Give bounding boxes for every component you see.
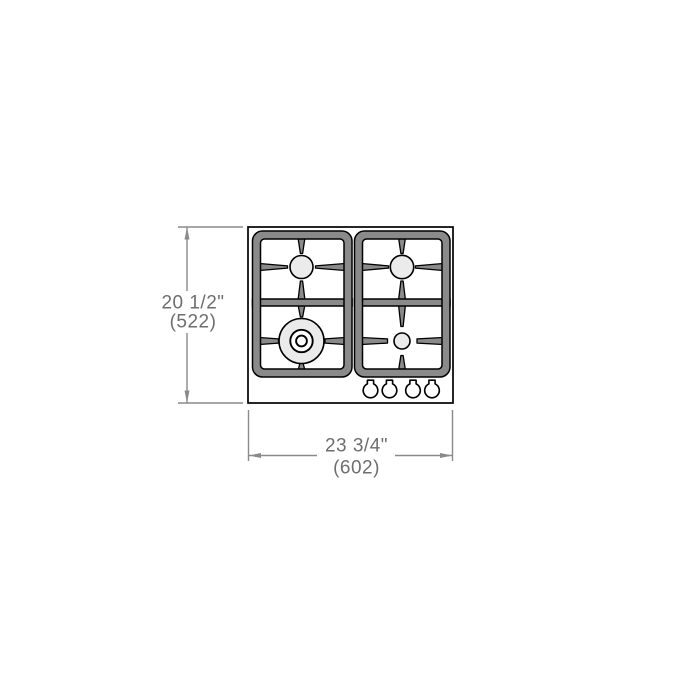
burner-left-front-wok (279, 319, 324, 364)
width-dimension-mm-label: (602) (333, 458, 380, 479)
height-dimension: 20 1/2" (522) (161, 227, 243, 403)
height-dimension-mm-label: (522) (170, 312, 217, 333)
grate-prong (416, 264, 444, 271)
grate-prong (399, 281, 406, 301)
grate-middle-bar (253, 299, 353, 306)
right-grate (355, 231, 451, 377)
grate-prong (260, 264, 288, 271)
grate-prong (362, 338, 388, 345)
grate-prong (417, 338, 443, 345)
grate-middle-bar (355, 299, 451, 306)
control-knob-3 (406, 380, 421, 398)
dimension-arrow-right-icon (440, 453, 453, 458)
height-dimension-inches-label: 20 1/2" (161, 293, 224, 314)
grate-prong (260, 338, 279, 345)
dimension-arrow-down-icon (185, 391, 190, 404)
burner-left-rear (290, 256, 313, 279)
cooktop-dimension-drawing: 20 1/2" (522) 23 3/4" (602) (0, 0, 700, 700)
dimension-arrow-up-icon (185, 227, 190, 240)
cooktop-surface (248, 227, 453, 403)
grate-prong (316, 264, 346, 271)
drawing-svg: 20 1/2" (522) 23 3/4" (602) (0, 0, 700, 700)
burner-right-rear (390, 255, 413, 278)
control-knob-1 (363, 380, 378, 398)
dimension-arrow-left-icon (249, 453, 262, 458)
control-knob-4 (425, 380, 440, 398)
grate-prong (399, 305, 406, 327)
grate-prong (399, 238, 406, 254)
width-dimension: 23 3/4" (602) (249, 410, 453, 479)
grate-prong (325, 338, 345, 345)
width-dimension-inches-label: 23 3/4" (325, 436, 388, 457)
control-knob-2 (382, 380, 397, 398)
wok-inner-cap (296, 336, 307, 347)
burner-right-front (394, 333, 410, 349)
grate-prong (298, 238, 305, 254)
grate-prong (298, 281, 305, 301)
control-knobs (363, 380, 439, 398)
grate-prong (362, 264, 389, 271)
